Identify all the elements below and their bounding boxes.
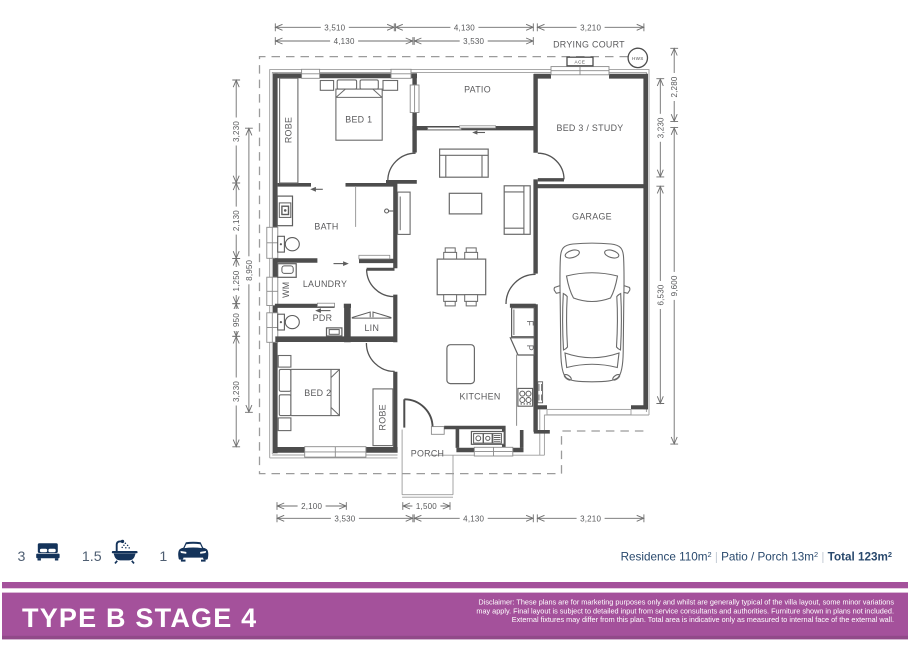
svg-text:3: 3 (18, 549, 26, 565)
svg-text:1,250: 1,250 (232, 270, 241, 291)
svg-text:3,230: 3,230 (232, 381, 241, 402)
svg-text:3,230: 3,230 (656, 117, 665, 138)
svg-text:may apply. Final layout is sub: may apply. Final layout is subject to de… (476, 606, 894, 615)
svg-text:WM: WM (281, 282, 291, 298)
svg-text:F: F (525, 320, 535, 326)
svg-text:LAUNDRY: LAUNDRY (303, 279, 347, 289)
svg-text:BATH: BATH (314, 222, 338, 232)
svg-text:2,100: 2,100 (301, 502, 322, 511)
svg-text:Disclaimer: These plans are fo: Disclaimer: These plans are for marketin… (478, 598, 894, 607)
svg-text:3,210: 3,210 (580, 23, 601, 32)
svg-text:4,130: 4,130 (454, 23, 475, 32)
svg-text:950: 950 (232, 313, 241, 327)
svg-text:BED 3 / STUDY: BED 3 / STUDY (556, 123, 623, 133)
svg-text:PATIO: PATIO (464, 84, 491, 94)
svg-text:ROBE: ROBE (378, 404, 388, 430)
svg-text:TYPE B STAGE 4: TYPE B STAGE 4 (22, 603, 257, 633)
svg-text:KITCHEN: KITCHEN (459, 391, 500, 401)
svg-text:PDR: PDR (313, 313, 333, 323)
svg-text:3,210: 3,210 (580, 514, 601, 523)
svg-text:1.5: 1.5 (82, 549, 102, 565)
svg-text:2,130: 2,130 (232, 210, 241, 231)
svg-text:6,530: 6,530 (656, 284, 665, 305)
svg-text:DRYING COURT: DRYING COURT (553, 40, 625, 50)
svg-text:ROBE: ROBE (284, 117, 294, 143)
svg-text:9,600: 9,600 (670, 275, 679, 296)
svg-text:8,950: 8,950 (245, 259, 254, 280)
svg-text:3,230: 3,230 (232, 121, 241, 142)
svg-text:P: P (525, 345, 535, 351)
svg-text:BED 2: BED 2 (304, 388, 331, 398)
svg-text:3,530: 3,530 (463, 37, 484, 46)
svg-text:LIN: LIN (364, 323, 379, 333)
svg-text:PORCH: PORCH (411, 448, 445, 458)
svg-text:2,280: 2,280 (670, 76, 679, 97)
svg-text:ACE: ACE (575, 60, 586, 65)
svg-text:HWS: HWS (632, 56, 644, 61)
svg-text:External fixtures may differ f: External fixtures may differ from this p… (512, 615, 894, 624)
svg-text:Residence 110m2 | Patio / Po: Residence 110m2 | Patio / Porch 13m2 | T… (621, 550, 892, 564)
svg-text:4,130: 4,130 (463, 514, 484, 523)
svg-text:4,130: 4,130 (334, 37, 355, 46)
svg-text:1: 1 (159, 549, 167, 565)
svg-text:1,500: 1,500 (416, 502, 437, 511)
svg-text:GARAGE: GARAGE (572, 212, 612, 222)
svg-text:3,510: 3,510 (324, 23, 345, 32)
svg-text:3,530: 3,530 (334, 514, 355, 523)
svg-text:BED 1: BED 1 (345, 115, 372, 125)
